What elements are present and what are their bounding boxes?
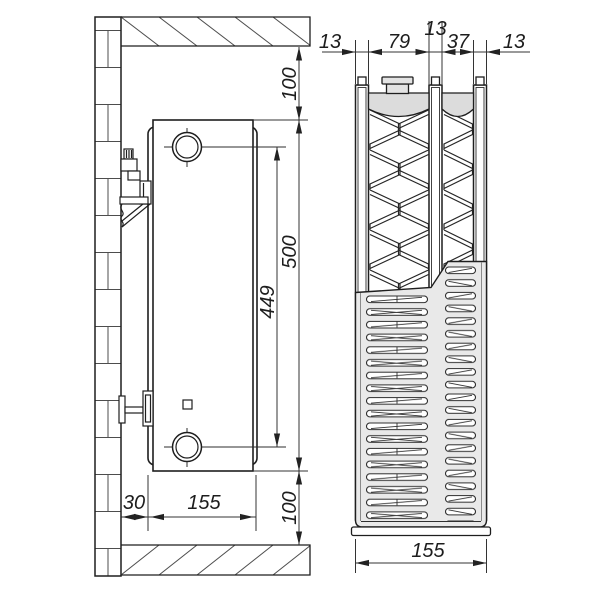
ceiling-hatch — [121, 17, 310, 46]
dim-front-panel-label: 13 — [319, 31, 341, 53]
dim-back-panel-label: 13 — [503, 31, 525, 53]
drawing-canvas: 100 500 449 100 30 155 — [0, 0, 600, 600]
wall-bracket-bottom — [119, 391, 153, 426]
top-header-narrow — [442, 93, 474, 117]
dim-section-width-label: 155 — [411, 540, 445, 562]
radiator-drawing: 100 500 449 100 30 155 — [0, 0, 600, 600]
section-top-dimensions: 13 79 13 37 13 — [319, 18, 530, 84]
air-vent-plug — [382, 77, 413, 94]
radiator-body — [153, 120, 253, 471]
wall-bracket-top — [120, 181, 151, 227]
convector-fins-narrow — [443, 108, 474, 268]
dim-bottom-clearance-label: 100 — [279, 491, 301, 524]
dim-connection-spacing-label: 449 — [257, 285, 279, 318]
drain-plug — [183, 400, 192, 409]
section-view: 13 79 13 37 13 155 — [319, 18, 530, 573]
side-view: 100 500 449 100 30 155 — [95, 17, 310, 576]
section-bottom-dimension: 155 — [356, 539, 487, 573]
grille-slots-wide — [366, 296, 428, 522]
brick-wall — [95, 17, 121, 576]
dim-wide-channel-label: 79 — [388, 31, 410, 53]
dim-middle-panel-label: 13 — [424, 18, 446, 40]
front-grille — [356, 262, 487, 528]
dim-top-clearance-label: 100 — [279, 67, 301, 100]
top-header-wide — [369, 93, 430, 117]
air-valve — [121, 149, 140, 180]
floor-hatch — [121, 545, 310, 575]
bottom-base-plate — [352, 527, 491, 536]
convector-fins-wide — [369, 108, 430, 293]
dim-depth-label: 155 — [187, 492, 221, 514]
dim-wall-clearance-label: 30 — [123, 492, 145, 514]
grille-slots-narrow — [445, 267, 476, 522]
dim-narrow-channel-label: 37 — [447, 31, 470, 53]
dim-height-label: 500 — [279, 235, 301, 268]
